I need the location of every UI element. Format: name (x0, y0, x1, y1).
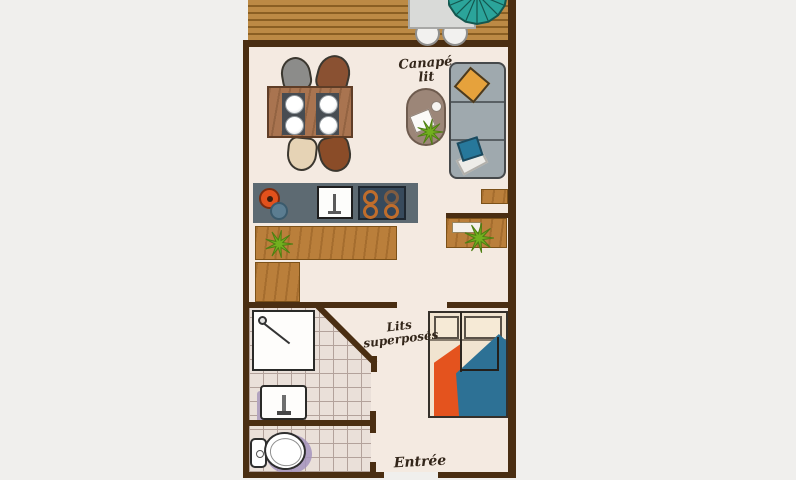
placemat (316, 93, 339, 114)
plate-icon (319, 95, 338, 114)
wall-door-jamb (370, 411, 376, 433)
plant-icon (264, 229, 294, 259)
cooktop-icon (358, 186, 406, 220)
plant-icon (416, 118, 444, 146)
wall-top (243, 40, 516, 47)
kitchen-bar (255, 226, 397, 260)
wall-middle-right (447, 302, 508, 308)
label-sofa-bed: Canapé lit (394, 55, 458, 87)
kitchen-sink (317, 186, 353, 219)
umbrella-icon (448, 0, 508, 26)
plant-icon (463, 222, 495, 254)
wall-console-divider (446, 213, 508, 218)
label-sofa-bed-line2: lit (418, 69, 435, 85)
plate-icon (285, 116, 304, 135)
label-entrance-text: Entrée (393, 453, 446, 472)
kitchen-counter (253, 183, 418, 223)
pillow (464, 316, 502, 339)
wood-mat (481, 189, 508, 204)
toilet-icon (250, 430, 310, 476)
bed-sketch-line (497, 337, 499, 371)
coffee-table (406, 88, 446, 146)
console-table (446, 218, 507, 248)
wall-door-jamb (371, 356, 377, 372)
shower (252, 310, 315, 371)
shower-hose (264, 323, 290, 344)
plate-icon (319, 116, 338, 135)
faucet-icon (333, 194, 336, 212)
wall-right (508, 0, 516, 478)
wall-bathroom-wc (243, 420, 373, 426)
round-sink (270, 202, 288, 220)
wall-left (243, 40, 249, 478)
plate-icon (285, 95, 304, 114)
dining-table (267, 86, 353, 138)
placemat (316, 114, 339, 135)
bed-sketch-line (460, 312, 462, 372)
placemat (282, 93, 305, 114)
floor-plan: Canapé lit (0, 0, 796, 480)
placemat (282, 114, 305, 135)
kitchen-cabinet (255, 262, 300, 302)
wall-bottom-left (243, 472, 384, 478)
wall-door-jamb (370, 462, 376, 476)
bed-sketch-line (460, 369, 499, 371)
bathroom-sink (260, 385, 307, 420)
wall-bottom-right (438, 472, 516, 478)
cup (431, 101, 442, 112)
